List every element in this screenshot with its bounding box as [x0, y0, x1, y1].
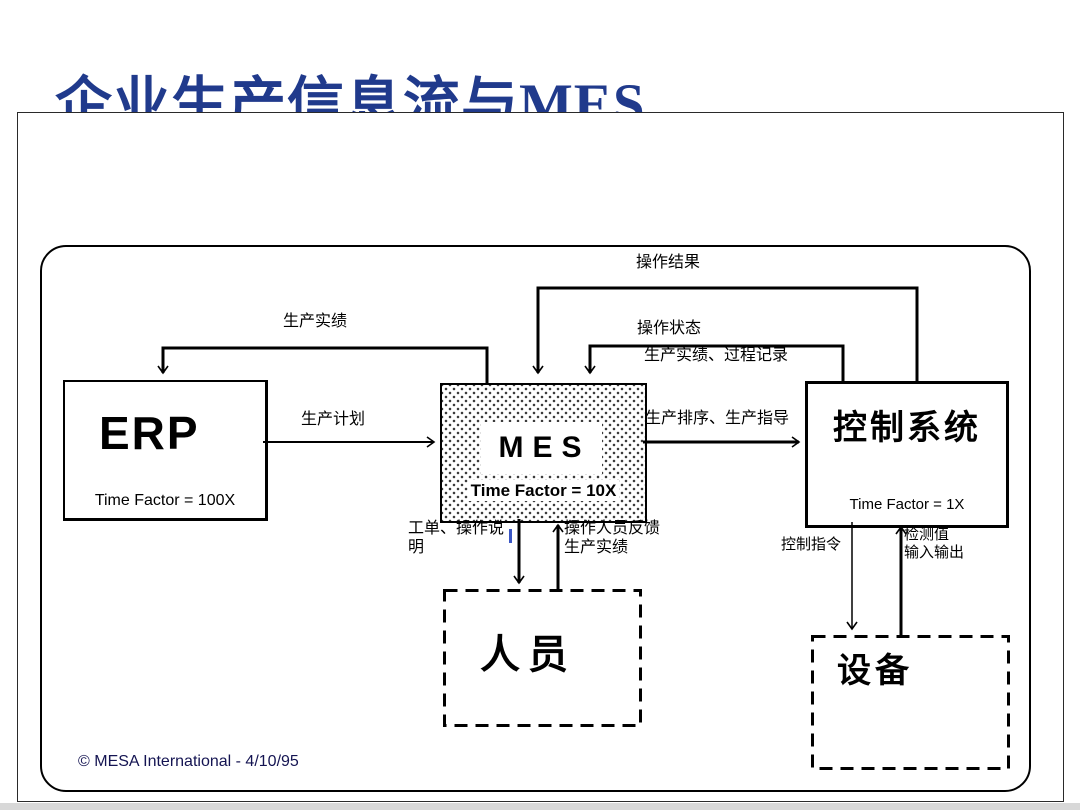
slide: 企业生产信息流与MES ERP Time Factor = 100X MES T…: [0, 0, 1080, 810]
copyright-footer: © MESA International - 4/10/95: [78, 753, 299, 771]
label-detection-values: 检测值 输入输出: [904, 526, 964, 561]
personnel-box: 人员: [443, 589, 642, 727]
label-operation-result: 操作结果: [636, 254, 700, 273]
equipment-label: 设备: [837, 643, 913, 692]
equipment-box: 设备: [811, 635, 1010, 770]
mes-box: MES Time Factor = 10X: [440, 383, 647, 523]
erp-box-label: ERP: [99, 406, 200, 460]
control-system-label: 控制系统: [808, 400, 1006, 449]
label-performance-process-record: 生产实绩、过程记录: [644, 347, 788, 366]
mes-box-label: MES: [481, 422, 602, 474]
label-control-command: 控制指令: [781, 536, 841, 554]
stray-cursor-mark: [509, 529, 512, 543]
control-system-time-factor: Time Factor = 1X: [808, 496, 1006, 513]
label-production-performance: 生产实绩: [283, 313, 347, 332]
control-system-box: 控制系统 Time Factor = 1X: [805, 381, 1009, 528]
label-work-order: 工单、操作说明: [408, 520, 514, 558]
mes-time-factor: Time Factor = 10X: [442, 481, 645, 501]
erp-box: ERP Time Factor = 100X: [63, 380, 268, 521]
label-operation-status: 操作状态: [637, 320, 701, 339]
personnel-label: 人员: [480, 622, 576, 680]
label-production-plan: 生产计划: [301, 411, 365, 430]
label-sequencing-guidance: 生产排序、生产指导: [645, 410, 789, 429]
erp-time-factor: Time Factor = 100X: [65, 492, 265, 510]
label-operator-feedback: 操作人员反馈 生产实绩: [564, 520, 660, 558]
page-bottom-strip: [0, 803, 1080, 810]
